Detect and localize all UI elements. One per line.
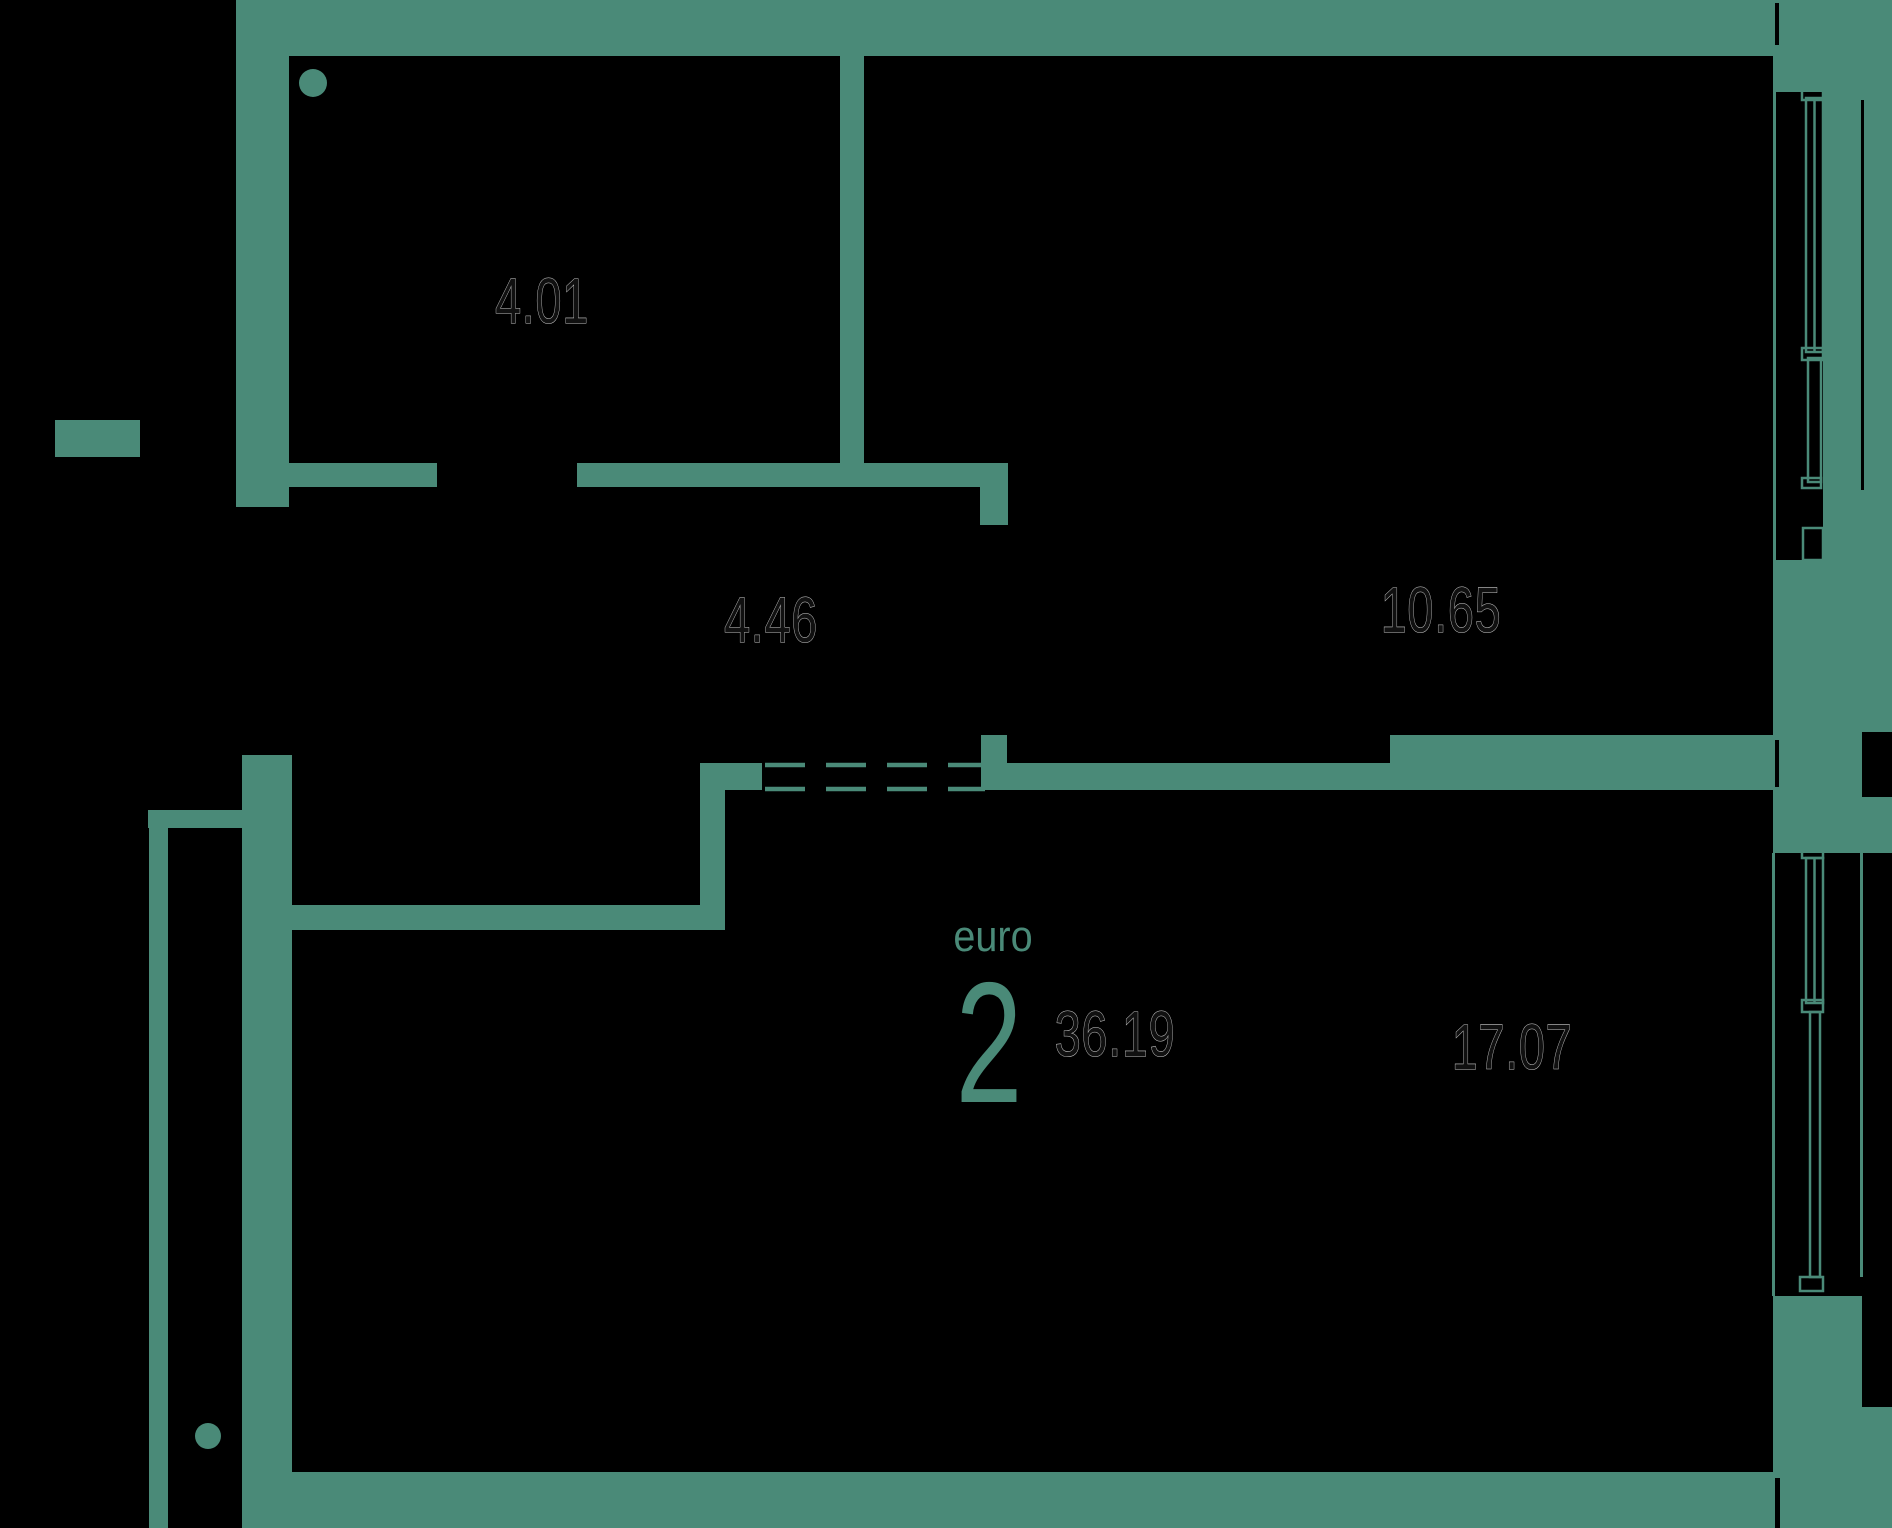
wall-left-lower-bar xyxy=(242,755,292,1528)
wall-mid-left-segment xyxy=(289,463,437,487)
window-lower xyxy=(1800,846,1823,1291)
wall-mid-right-segment xyxy=(577,463,1008,487)
room-area-label: 10.65 xyxy=(1381,573,1502,647)
wall-mid-step xyxy=(980,487,1008,525)
wall-right-strip-upper xyxy=(1862,560,1892,732)
total-area-label: 36.19 xyxy=(1055,997,1176,1071)
wall-left-thin-line xyxy=(149,810,168,1528)
wall-junction-slit xyxy=(1775,740,1779,787)
window-recess-edge-upper xyxy=(1773,92,1776,560)
room-area-label: 17.07 xyxy=(1452,1010,1573,1084)
window-outer-line-lower xyxy=(1860,853,1863,1277)
wall-hall-bottom xyxy=(292,905,725,930)
window-recess-edge-lower xyxy=(1772,853,1775,1296)
door-dot-top xyxy=(299,69,327,97)
room-area-label: 4.01 xyxy=(495,264,589,338)
rooms-count-label: 2 xyxy=(956,944,1023,1142)
wall-right-upper-block xyxy=(1823,56,1892,560)
wall-room-bottom-thick xyxy=(1390,735,1773,790)
wall-bottom-band xyxy=(242,1472,1892,1528)
wall-right-mid-block xyxy=(1773,560,1862,853)
top-band-joint-line xyxy=(1775,3,1779,45)
room-area-label: 4.46 xyxy=(724,583,818,657)
wall-top-band xyxy=(236,0,1892,56)
wall-door-post xyxy=(700,790,725,905)
wall-room-divider xyxy=(840,56,864,487)
wall-room-bottom-thin xyxy=(1007,763,1390,790)
wall-recess-top-sill xyxy=(1773,56,1823,92)
wall-left-connector xyxy=(148,810,242,828)
wall-opening-post xyxy=(981,735,1007,790)
floor-plan: 4.01 4.46 10.65 17.07 euro 2 36.19 xyxy=(0,0,1892,1528)
wall-above-post xyxy=(700,763,762,790)
right-wall-hairline xyxy=(1861,100,1864,490)
floor-plan-walls xyxy=(0,0,1892,1528)
door-dot-bottom xyxy=(195,1423,221,1449)
wall-left-upper xyxy=(236,0,289,507)
wall-bottom-right-block xyxy=(1773,1296,1862,1528)
bottom-band-joint-line xyxy=(1775,1478,1780,1528)
wall-right-strip-lower xyxy=(1862,797,1892,853)
wall-far-left-stub xyxy=(55,420,140,457)
window-upper xyxy=(1802,90,1823,560)
wall-right-bottom-strip xyxy=(1862,1407,1892,1528)
